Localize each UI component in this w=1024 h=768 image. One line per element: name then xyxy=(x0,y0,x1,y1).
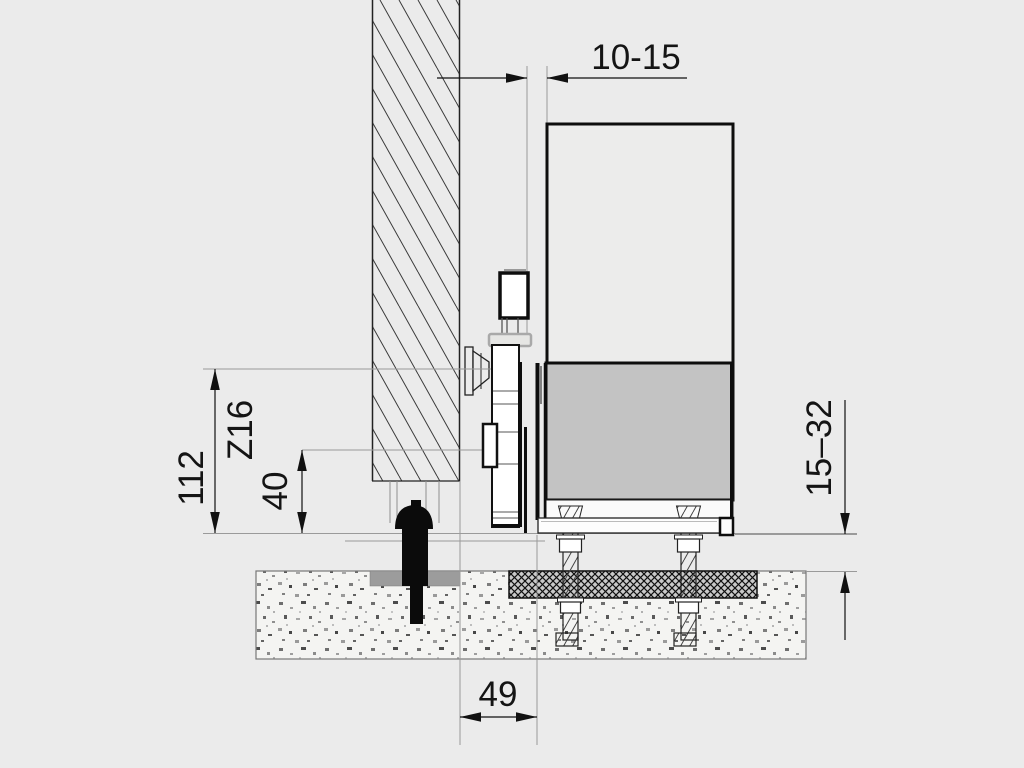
dim-rack-height-label: 40 xyxy=(256,472,295,511)
grout-pad xyxy=(509,571,757,598)
pinion-designation-label: Z16 xyxy=(221,400,260,460)
dim-top-gap-label: 10-15 xyxy=(591,38,681,77)
gate-post-section xyxy=(372,0,460,481)
dim-pinion-height-label: 112 xyxy=(172,450,211,506)
motor-body xyxy=(541,363,733,500)
technical-drawing-canvas: 10-15 112 Z16 40 15–32 49 xyxy=(0,0,1024,768)
base-plate xyxy=(538,518,733,535)
pinion-side-bracket xyxy=(483,424,497,467)
section-drawing: 10-15 112 Z16 40 15–32 49 xyxy=(0,0,1024,768)
drive-cover xyxy=(547,124,733,365)
dim-height-adjustment-label: 15–32 xyxy=(800,399,839,496)
dim-post-distance-label: 49 xyxy=(479,675,518,714)
